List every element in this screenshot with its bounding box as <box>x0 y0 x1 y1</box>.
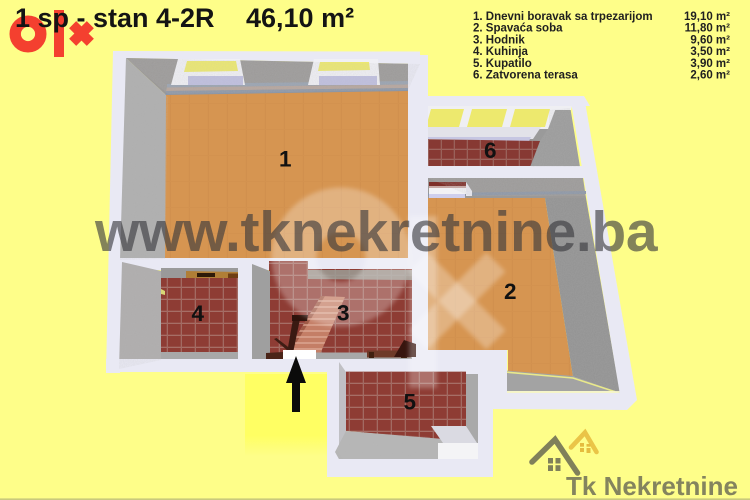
svg-text:www.tknekretnine.ba: www.tknekretnine.ba <box>94 200 659 264</box>
svg-text:6: 6 <box>484 138 497 163</box>
svg-text:19,10 m²: 19,10 m² <box>684 11 730 23</box>
svg-text:Tk Nekretnine: Tk Nekretnine <box>566 471 738 500</box>
svg-text:1: 1 <box>279 147 292 172</box>
svg-text:11,80 m²: 11,80 m² <box>685 23 731 35</box>
svg-text:3,90 m²: 3,90 m² <box>690 58 730 70</box>
svg-text:5. Kupatilo: 5. Kupatilo <box>473 58 532 70</box>
svg-text:4: 4 <box>192 301 205 326</box>
svg-text:6. Zatvorena terasa: 6. Zatvorena terasa <box>473 70 578 82</box>
svg-text:3. Hodnik: 3. Hodnik <box>473 34 525 46</box>
svg-text:46,10 m²: 46,10 m² <box>246 3 354 33</box>
svg-text:3,50 m²: 3,50 m² <box>690 46 730 58</box>
svg-text:9,60 m²: 9,60 m² <box>690 34 730 46</box>
svg-text:1. Dnevni boravak sa trpezarij: 1. Dnevni boravak sa trpezarijom <box>473 11 653 23</box>
svg-text:3: 3 <box>337 301 350 326</box>
svg-text:2. Spavaća soba: 2. Spavaća soba <box>473 23 563 35</box>
svg-text:4. Kuhinja: 4. Kuhinja <box>473 46 529 58</box>
svg-text:1 sp - stan 4-2R: 1 sp - stan 4-2R <box>15 3 215 33</box>
svg-text:2,60 m²: 2,60 m² <box>690 70 730 82</box>
svg-text:5: 5 <box>404 390 417 415</box>
svg-text:2: 2 <box>504 279 517 304</box>
